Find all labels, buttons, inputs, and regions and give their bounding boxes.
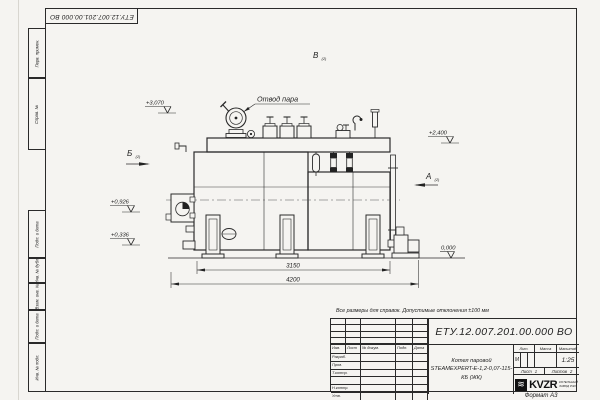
revision-grid bbox=[331, 319, 428, 344]
manhole bbox=[222, 229, 236, 240]
feed-valve-block bbox=[336, 125, 350, 139]
elevation-mark-2400: +2,400 bbox=[428, 131, 459, 144]
elevation-0336-label: +0,336 bbox=[111, 233, 130, 239]
sig-prov: Пров. bbox=[331, 362, 361, 369]
water-level-gauge bbox=[330, 152, 337, 172]
lit-cell-2 bbox=[521, 353, 528, 368]
view-a-ref: (2) bbox=[435, 177, 441, 182]
view-v-label: В bbox=[313, 51, 319, 60]
elevation-mark-0926: +0,926 bbox=[110, 200, 140, 213]
elevation-mark-0000: 0,000 bbox=[440, 246, 456, 259]
elevation-3070-label: +3,070 bbox=[146, 101, 165, 107]
kvzr-logo-text: KVZR bbox=[529, 379, 557, 391]
support-leg bbox=[362, 215, 384, 258]
steam-outlet-callout: Отвод пара bbox=[244, 95, 310, 112]
elevation-2400-label: +2,400 bbox=[429, 131, 448, 137]
elevation-0000-label: 0,000 bbox=[441, 246, 456, 252]
view-b-ref: (2) bbox=[136, 154, 142, 159]
sheets-cell: Листов 2 bbox=[545, 368, 579, 375]
view-arrow-b: Б (2) bbox=[126, 149, 150, 166]
signature-grid: Изм. Лист № докум. Подп. Дата Разраб. Пр… bbox=[331, 344, 428, 394]
drawing-sheet: { "frame": { "top_stamp": "ЕТУ.12.007.20… bbox=[0, 0, 600, 400]
document-designation: ЕТУ.12.007.201.00.000 ВО bbox=[428, 319, 579, 344]
sig-razrab: Разраб. bbox=[331, 354, 361, 361]
col-izm: Изм. bbox=[331, 345, 346, 353]
view-v-ref: (2) bbox=[322, 56, 328, 61]
steam-outlet-label: Отвод пара bbox=[257, 95, 298, 104]
sig-tkontr: Т.контр. bbox=[331, 370, 361, 377]
safety-valves bbox=[263, 117, 311, 138]
mass-header: Масса bbox=[535, 345, 557, 353]
title-block-right: Лит. Масса Масштаб М 1:25 Лист 1 Листов … bbox=[513, 344, 579, 394]
safety-valve bbox=[297, 117, 311, 138]
view-b-label: Б bbox=[127, 149, 132, 158]
col-podp: Подп. bbox=[396, 345, 413, 353]
kvzr-sub-line2: ЗАВОД РЭП bbox=[559, 385, 578, 389]
sig-nkontr: Н.контр. bbox=[331, 385, 361, 392]
thermometer-pocket bbox=[371, 110, 379, 139]
format-label: Формат А3 bbox=[505, 393, 577, 399]
steam-outlet-valve bbox=[221, 102, 247, 138]
col-data: Дата bbox=[413, 345, 428, 353]
kvzr-logo-icon: ≋ bbox=[515, 379, 527, 391]
doc-name-line1: Котел паровой bbox=[451, 357, 491, 365]
lit-header: Лит. bbox=[514, 345, 535, 353]
support-leg bbox=[276, 215, 298, 258]
document-name: Котел паровой STEAMEXPERT-Е-1,2-0,07-115… bbox=[428, 344, 514, 394]
manometer-siphon bbox=[353, 116, 362, 130]
reference-note: Все размеры для справок. Допустимые откл… bbox=[336, 308, 489, 314]
view-arrow-v: В (2) bbox=[313, 51, 327, 61]
kvzr-logo: ≋ KVZR КОТЕЛЬНЫЙ ЗАВОД РЭП bbox=[514, 375, 579, 394]
elevation-mark-0336: +0,336 bbox=[110, 233, 140, 246]
title-block: ЕТУ.12.007.201.00.000 ВО Изм. Лист № док… bbox=[330, 318, 577, 392]
col-dokum: № докум. bbox=[361, 345, 396, 353]
mass-value bbox=[535, 353, 557, 368]
feed-pump bbox=[392, 227, 419, 258]
support-leg bbox=[202, 215, 224, 258]
dim-4200-label: 4200 bbox=[286, 277, 300, 284]
sheet-cell: Лист 1 bbox=[514, 368, 545, 375]
scale-value: 1:25 bbox=[557, 353, 579, 368]
water-level-gauge bbox=[346, 152, 353, 172]
view-a-label: А bbox=[425, 172, 431, 181]
burner-box bbox=[166, 194, 195, 222]
doc-name-line2: STEAMEXPERT-Е-1,2-0,07-115-КБ (ЖК) bbox=[429, 365, 514, 382]
scale-header: Масштаб bbox=[557, 345, 579, 353]
steam-drum bbox=[207, 138, 390, 152]
drum-round-fitting bbox=[247, 130, 254, 137]
lit-cell-3 bbox=[528, 353, 535, 368]
safety-valve bbox=[263, 117, 277, 138]
col-list: Лист bbox=[346, 345, 361, 353]
dim-3150-label: 3150 bbox=[286, 263, 300, 270]
elevation-mark-3070: +3,070 bbox=[145, 101, 176, 114]
sig-utv: Утв. bbox=[331, 393, 361, 400]
dimension-3150: 3150 bbox=[197, 261, 390, 274]
view-arrow-a: А (2) bbox=[414, 172, 440, 187]
sig-blank bbox=[331, 377, 361, 384]
lit-value: М bbox=[514, 353, 521, 368]
elevation-0926-label: +0,926 bbox=[111, 200, 130, 206]
safety-valve bbox=[280, 117, 294, 138]
